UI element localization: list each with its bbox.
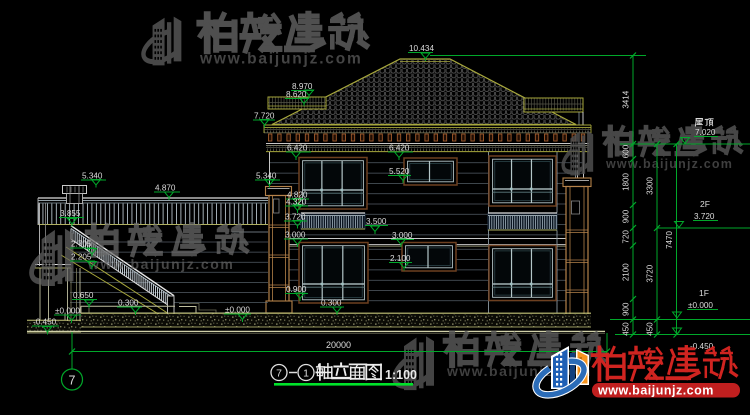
svg-text:450: 450 bbox=[646, 322, 655, 336]
svg-text:6.420: 6.420 bbox=[287, 144, 308, 153]
svg-text:1: 1 bbox=[303, 368, 309, 380]
svg-text:3.855: 3.855 bbox=[60, 209, 81, 218]
svg-text:900: 900 bbox=[622, 209, 631, 223]
svg-text:1F: 1F bbox=[699, 288, 709, 298]
svg-text:10.434: 10.434 bbox=[409, 44, 434, 53]
svg-text:2.100: 2.100 bbox=[390, 254, 411, 263]
svg-text:4.870: 4.870 bbox=[155, 184, 176, 193]
svg-text:7: 7 bbox=[69, 374, 76, 388]
svg-text:3.000: 3.000 bbox=[285, 231, 306, 240]
svg-text:3.500: 3.500 bbox=[366, 217, 387, 226]
svg-text:600: 600 bbox=[622, 144, 631, 158]
svg-text:www.baijunjz.com: www.baijunjz.com bbox=[597, 384, 714, 398]
svg-text:www.baijunjz.com: www.baijunjz.com bbox=[446, 363, 592, 379]
svg-text:720: 720 bbox=[622, 230, 631, 244]
svg-text:www.baijunjz.com: www.baijunjz.com bbox=[87, 256, 234, 272]
svg-text:0.300: 0.300 bbox=[118, 299, 139, 308]
svg-text:2100: 2100 bbox=[622, 263, 631, 281]
svg-text:3720: 3720 bbox=[646, 264, 655, 282]
svg-text:900: 900 bbox=[622, 302, 631, 316]
svg-text:±0.000: ±0.000 bbox=[225, 306, 250, 315]
svg-text:0.300: 0.300 bbox=[321, 299, 342, 308]
svg-text:6.420: 6.420 bbox=[389, 144, 410, 153]
svg-text:1800: 1800 bbox=[622, 173, 631, 191]
svg-text:3.720: 3.720 bbox=[694, 212, 715, 221]
svg-text:7: 7 bbox=[276, 368, 282, 380]
svg-text:7.020: 7.020 bbox=[695, 128, 716, 137]
svg-text:2.705: 2.705 bbox=[71, 240, 92, 249]
svg-text:3300: 3300 bbox=[646, 177, 655, 195]
svg-text:2F: 2F bbox=[700, 199, 710, 209]
svg-text:7470: 7470 bbox=[665, 231, 674, 249]
svg-text:1:100: 1:100 bbox=[385, 368, 417, 382]
svg-text:-0.450: -0.450 bbox=[33, 318, 57, 327]
svg-text:450: 450 bbox=[622, 322, 631, 336]
svg-text:±0.000: ±0.000 bbox=[55, 307, 80, 316]
svg-text:±0.000: ±0.000 bbox=[688, 301, 713, 310]
svg-text:0.650: 0.650 bbox=[73, 291, 94, 300]
svg-text:2.205: 2.205 bbox=[71, 253, 92, 262]
svg-text:www.baijunjz.com: www.baijunjz.com bbox=[199, 51, 363, 68]
svg-text:3414: 3414 bbox=[622, 90, 631, 108]
svg-text:20000: 20000 bbox=[326, 340, 351, 350]
